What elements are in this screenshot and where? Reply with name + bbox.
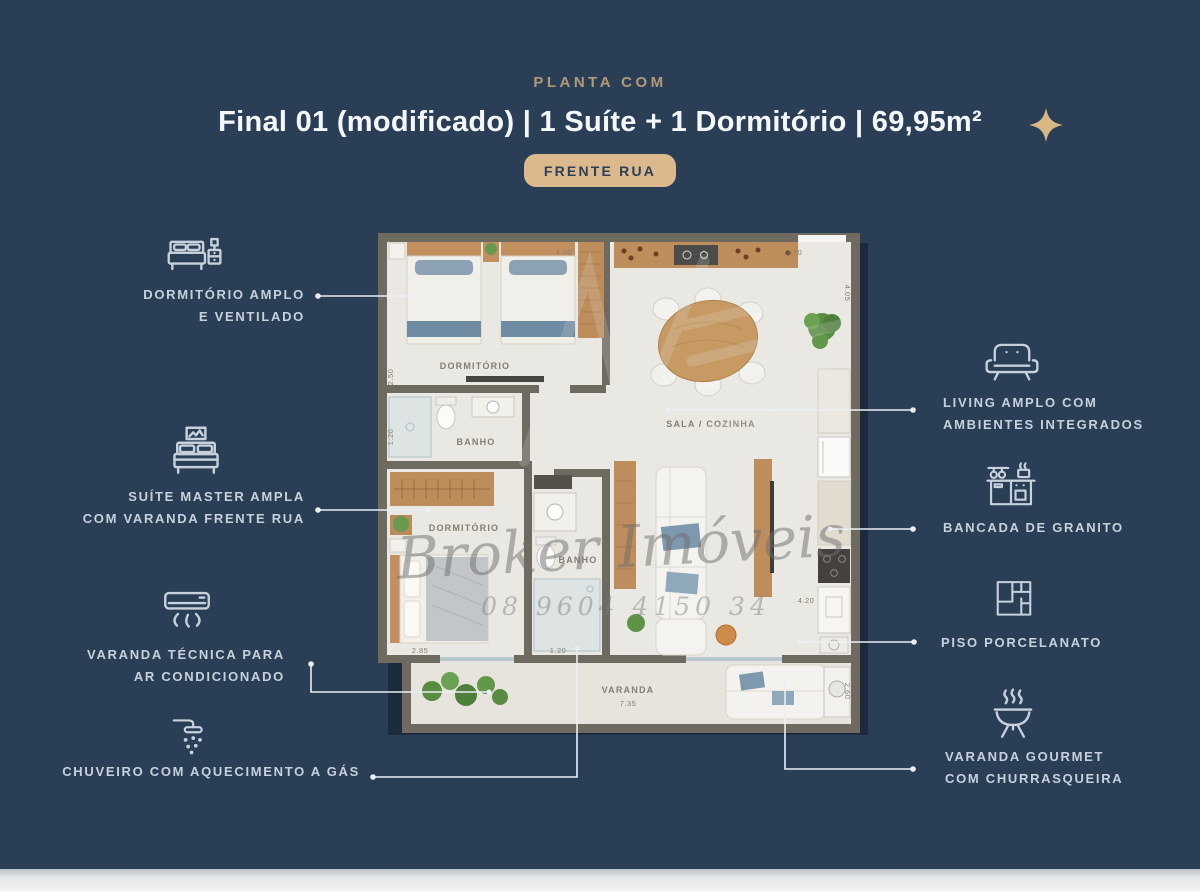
callout-suite: SUÍTE MASTER AMPLA COM VARANDA FRENTE RU…: [40, 486, 305, 530]
eyebrow-label: PLANTA COM: [0, 74, 1200, 91]
suite-bed-icon: [166, 424, 226, 484]
callout-varanda-tecnica: VARANDA TÉCNICA PARA AR CONDICIONADO: [40, 644, 285, 688]
svg-text:1.20: 1.20: [386, 429, 395, 446]
shower-icon: [162, 712, 216, 766]
svg-text:BANHO: BANHO: [457, 437, 496, 447]
page-title: Final 01 (modificado) | 1 Suíte + 1 Dorm…: [0, 106, 1200, 139]
sofa-icon: [983, 334, 1041, 392]
svg-text:08 9604 4150 34: 08 9604 4150 34: [481, 592, 771, 621]
svg-text:2.50: 2.50: [386, 369, 395, 386]
callout-living: LIVING AMPLO COM AMBIENTES INTEGRADOS: [943, 392, 1200, 436]
street-front-badge: FRENTE RUA: [524, 154, 676, 187]
callout-dormitorio: DORMITÓRIO AMPLO E VENTILADO: [55, 284, 305, 328]
svg-text:4.05: 4.05: [843, 285, 852, 302]
callout-chuveiro: CHUVEIRO COM AQUECIMENTO A GÁS: [60, 761, 360, 783]
callout-varanda-gourmet: VARANDA GOURMET COM CHURRASQUEIRA: [945, 746, 1200, 790]
floor-tiles-icon: [988, 574, 1040, 626]
svg-text:4.20: 4.20: [798, 596, 815, 605]
svg-text:4.00: 4.00: [556, 248, 573, 257]
svg-text:VARANDA: VARANDA: [602, 685, 655, 695]
svg-text:DORMITÓRIO: DORMITÓRIO: [440, 360, 511, 371]
air-conditioner-icon: [158, 584, 216, 642]
svg-text:3.70: 3.70: [786, 248, 803, 257]
callout-piso: PISO PORCELANATO: [941, 632, 1200, 654]
floor-plan: DORMITÓRIO BANHO: [374, 229, 872, 739]
svg-text:7.35: 7.35: [620, 699, 637, 708]
sparkle-icon: [1028, 107, 1064, 143]
floorplan-marketing-page: PLANTA COM Final 01 (modificado) | 1 Suí…: [0, 0, 1200, 892]
svg-text:1.20: 1.20: [550, 646, 567, 655]
bottom-bar: [0, 869, 1200, 892]
barbecue-grill-icon: [984, 686, 1042, 744]
callout-bancada: BANCADA DE GRANITO: [943, 517, 1200, 539]
kitchen-counter-icon: [982, 458, 1040, 516]
svg-text:2.85: 2.85: [412, 646, 429, 655]
svg-text:2.60: 2.60: [843, 683, 852, 700]
double-bed-icon: [166, 230, 224, 288]
